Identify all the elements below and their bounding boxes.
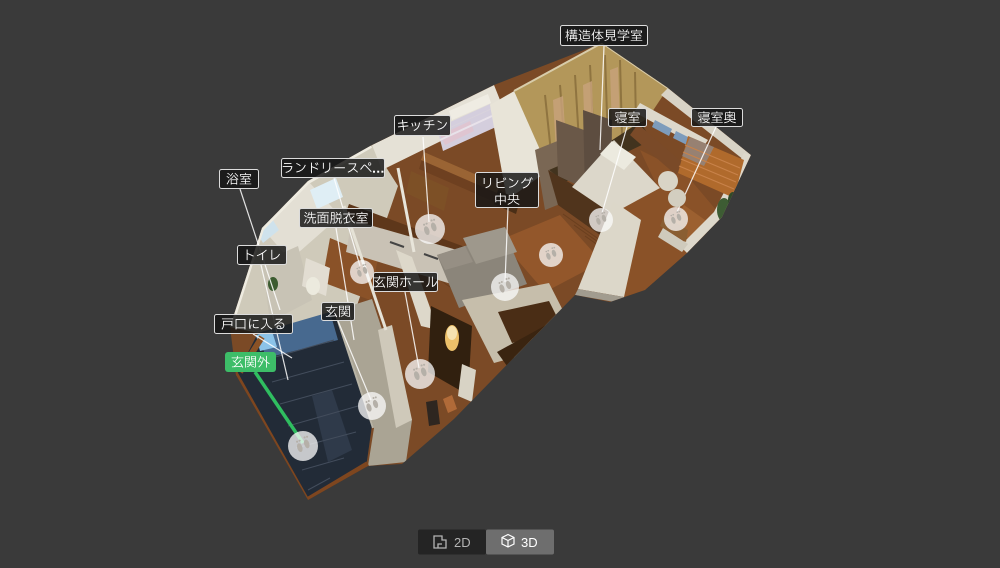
svg-text:3D: 3D [521,535,538,550]
svg-text:2D: 2D [454,535,471,550]
